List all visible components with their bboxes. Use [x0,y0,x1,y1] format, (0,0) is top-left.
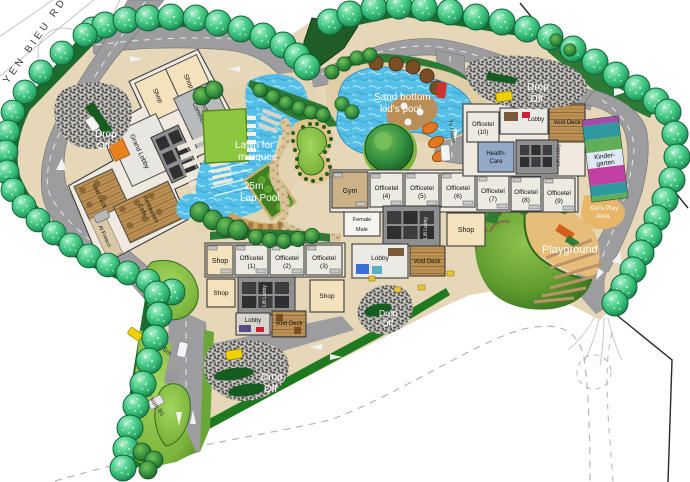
svg-text:kid's pool: kid's pool [380,104,421,115]
svg-text:Off: Off [530,94,543,105]
svg-text:Care: Care [489,159,503,165]
svg-text:marquee: marquee [238,152,278,163]
svg-text:Area: Area [596,213,610,220]
svg-text:Void Deck: Void Deck [553,120,581,126]
svg-text:Lift Lobby: Lift Lobby [262,285,268,307]
svg-text:Void Deck: Void Deck [275,321,303,327]
svg-text:25m: 25m [244,181,263,192]
svg-text:Officetel: Officetel [312,255,336,262]
svg-text:Shop: Shop [213,290,229,297]
svg-text:Lobby: Lobby [245,318,261,324]
svg-text:Officetel: Officetel [472,122,494,128]
svg-text:Lawn for: Lawn for [235,140,274,151]
svg-text:Male: Male [356,227,368,233]
svg-text:(8): (8) [522,197,530,204]
svg-text:Lobby: Lobby [528,117,544,123]
svg-text:(2): (2) [283,263,291,270]
svg-text:Playground: Playground [542,244,598,256]
svg-text:Off: Off [382,318,394,328]
svg-text:Officetel: Officetel [547,190,571,197]
svg-text:Shop: Shop [212,258,228,265]
svg-text:Drop: Drop [261,372,283,383]
svg-text:Gym: Gym [343,188,358,195]
svg-text:Health-: Health- [486,151,505,157]
svg-text:(9): (9) [555,198,563,205]
svg-text:(3): (3) [320,263,328,270]
svg-text:Shop: Shop [319,293,335,300]
svg-text:Void Deck: Void Deck [413,259,441,265]
svg-text:Officetel: Officetel [410,185,434,192]
svg-text:(1): (1) [248,263,256,270]
svg-text:Off: Off [97,141,110,152]
svg-text:(4): (4) [383,193,391,200]
svg-text:(10): (10) [478,130,489,136]
svg-text:Lobby: Lobby [371,255,389,262]
svg-text:Drop: Drop [527,82,549,93]
svg-text:(6): (6) [454,193,462,200]
svg-text:Lift Lobby: Lift Lobby [556,144,562,166]
svg-text:Female: Female [353,217,371,223]
svg-text:Officetel: Officetel [275,255,299,262]
svg-text:Sand bottom: Sand bottom [374,92,431,103]
svg-text:Officetel: Officetel [375,185,399,192]
svg-text:Officetel: Officetel [481,188,505,195]
svg-text:Officetel: Officetel [240,255,264,262]
svg-text:(7): (7) [489,196,497,203]
svg-text:(5): (5) [418,193,426,200]
svg-text:Drop: Drop [95,129,117,140]
svg-text:Officetel: Officetel [514,189,538,196]
svg-text:Officetel: Officetel [446,185,470,192]
svg-text:Drop: Drop [379,308,398,318]
svg-text:Lift Lobby: Lift Lobby [423,217,429,239]
svg-text:Lap Pool: Lap Pool [240,193,279,204]
svg-text:Off: Off [264,384,277,395]
svg-text:Kid's Play: Kid's Play [590,205,619,212]
svg-text:Shop: Shop [458,227,474,234]
